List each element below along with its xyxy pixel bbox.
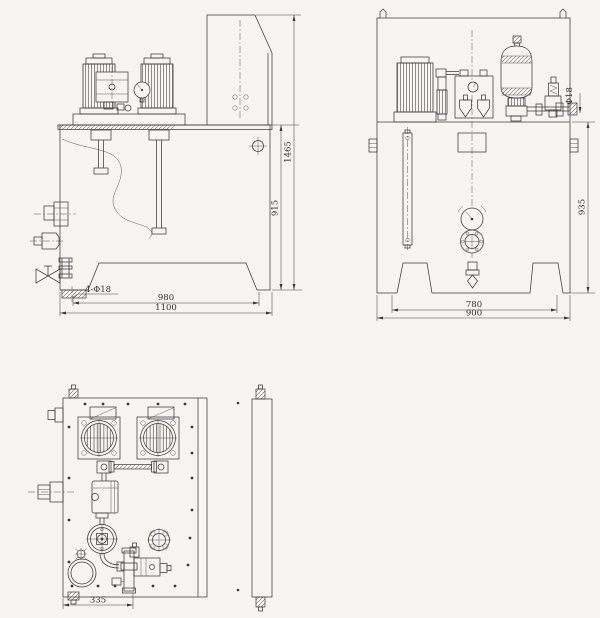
hydraulic-power-unit-drawing: 4-Φ18 980 1100 915 1465 <box>0 0 600 618</box>
rear-panel <box>207 15 272 125</box>
outlet-pipe-label: Φ18 <box>565 87 575 105</box>
fan-motor-right-top <box>137 407 179 459</box>
mounting-bolt-plate-top <box>69 385 78 398</box>
dim-foot-hole-span: 980 <box>158 293 174 303</box>
dim-overall-width-side: 900 <box>466 309 482 319</box>
weld-dot-top <box>237 402 240 405</box>
tank-front <box>58 125 272 290</box>
side-port-mid <box>28 482 74 502</box>
dim-tank-height-side: 935 <box>578 199 588 215</box>
cross-fitting <box>75 548 87 560</box>
four-bolt-flange <box>147 528 171 552</box>
suction-pipe-right <box>149 130 169 234</box>
plug-fitting <box>30 233 64 249</box>
return-flange <box>34 202 76 226</box>
front-view: 4-Φ18 980 1100 915 1465 <box>30 15 302 316</box>
dim-overall-height: 1465 <box>284 141 294 163</box>
mounting-bolt-rail-bottom <box>256 597 265 611</box>
suction-pipe-left <box>91 130 111 174</box>
dim-overall-width: 1100 <box>155 303 177 313</box>
drain-valve <box>36 258 72 283</box>
wall-flange-left <box>369 139 377 152</box>
motor-base-plate <box>73 114 185 125</box>
pump-outlets <box>97 461 168 481</box>
drain-valve-assembly-top <box>112 543 171 593</box>
mounting-bolt-plate-bottom <box>68 592 79 604</box>
return-filter <box>86 523 118 555</box>
accumulator <box>501 36 532 121</box>
wall-flange-right <box>570 139 578 152</box>
mounting-rail <box>252 399 272 597</box>
fan-motor-left-top <box>78 407 120 459</box>
level-gauge <box>403 127 412 250</box>
side-view: Φ18 <box>369 9 595 321</box>
break-line <box>62 139 152 239</box>
tank-side-hole <box>249 137 267 155</box>
foot-hole-callout-label: 4-Φ18 <box>85 285 111 295</box>
dimension-1465: 1465 <box>256 15 301 290</box>
filter-box <box>455 70 493 118</box>
filter-cartridge <box>436 69 459 120</box>
filler-breather <box>461 230 484 253</box>
pressure-gauge-side <box>458 206 486 230</box>
drain-plug <box>466 262 479 288</box>
dim-drain-valve-offset: 335 <box>90 596 106 606</box>
valve-block-top <box>92 481 119 525</box>
cleanout-cover <box>68 559 96 587</box>
motor-side <box>394 57 436 122</box>
side-port-upper <box>48 408 63 422</box>
top-view: 335 <box>28 385 272 611</box>
lifting-lug-right <box>560 9 566 18</box>
lifting-lug-left <box>380 9 386 18</box>
dimension-900: 900 <box>377 295 570 321</box>
drawing-sheet: 4-Φ18 980 1100 915 1465 <box>0 0 600 618</box>
mounting-bolt-rail-top <box>256 385 265 399</box>
dim-tank-height: 915 <box>271 200 281 216</box>
weld-dot-bottom <box>237 589 240 592</box>
curved-pipe <box>100 554 124 572</box>
